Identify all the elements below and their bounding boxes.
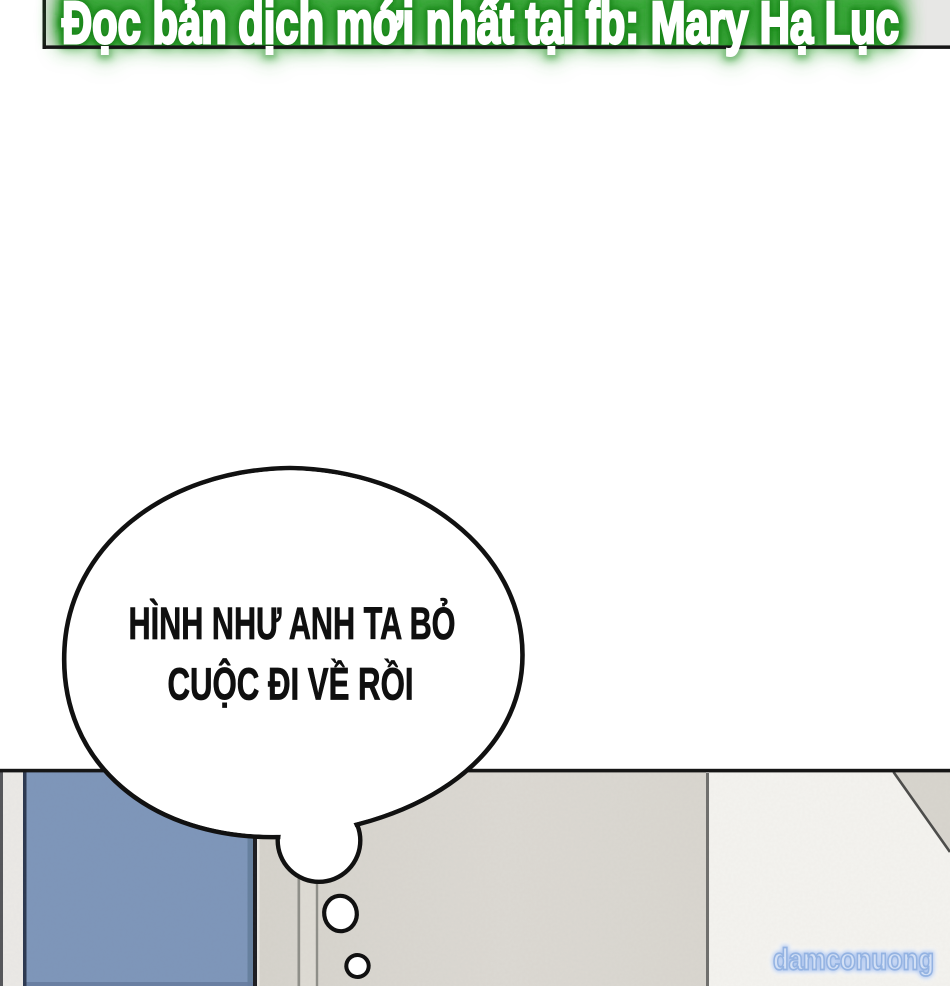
svg-text:Đọc bản dịch mới nhất tại fb:: Đọc bản dịch mới nhất tại fb: Mary Hạ Lụ… [62, 0, 899, 56]
svg-text:damconuong: damconuong [773, 942, 934, 977]
svg-text:HÌNH NHƯ ANH TA BỎ: HÌNH NHƯ ANH TA BỎ [129, 598, 456, 649]
svg-text:CUỘC ĐI VỀ RỒI: CUỘC ĐI VỀ RỒI [168, 659, 414, 710]
